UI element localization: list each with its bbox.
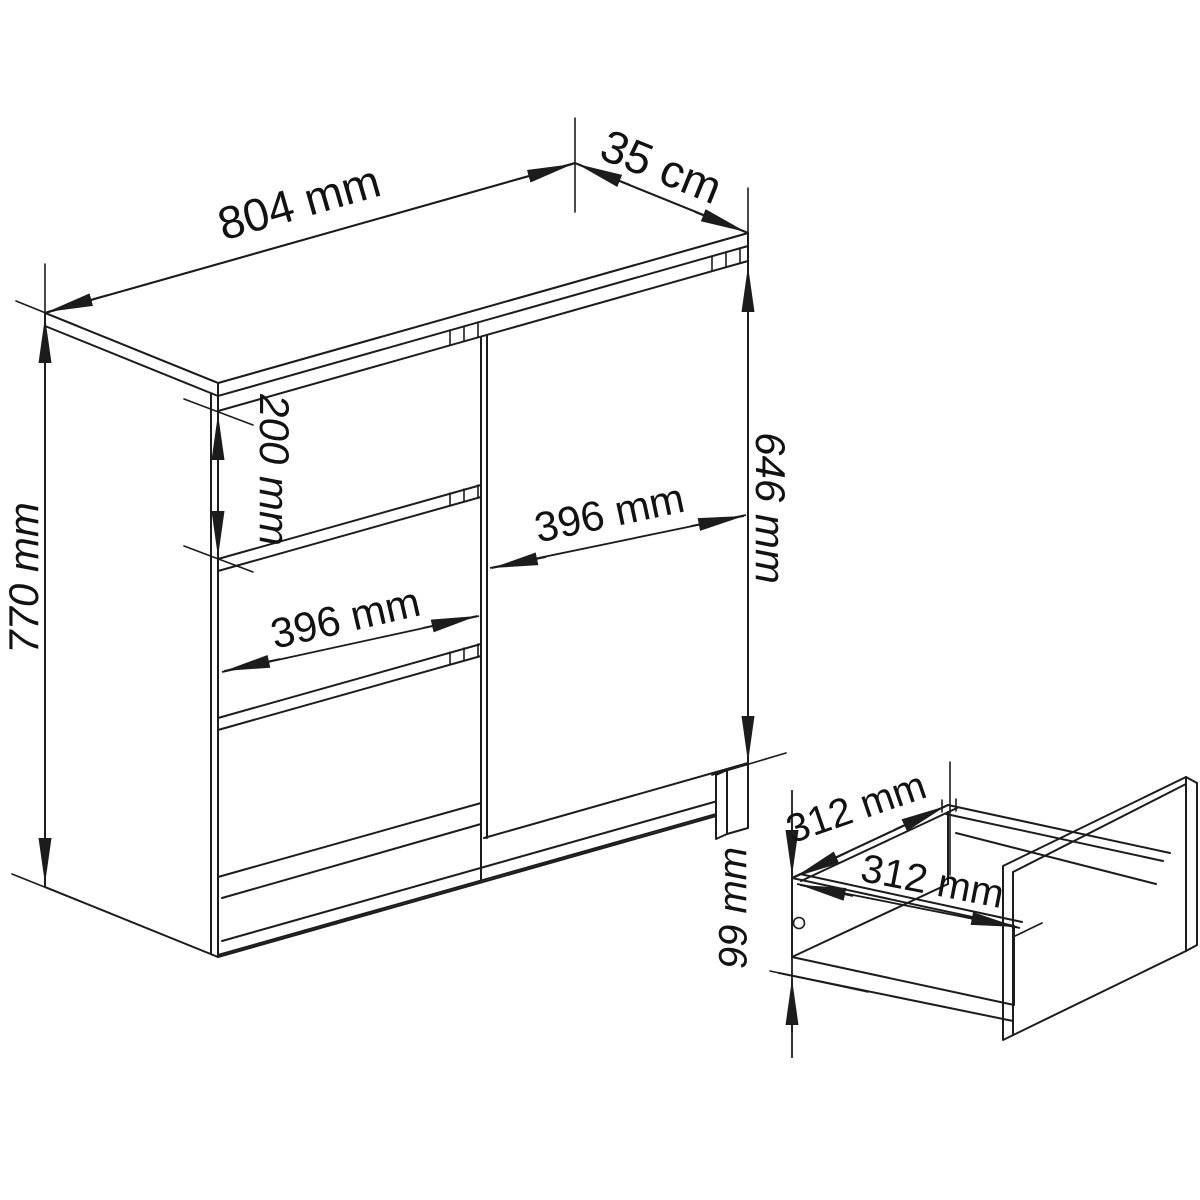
- furniture-dimension-drawing: 804 mm 35 cm 770 mm 200 mm 396 mm 396 mm…: [0, 0, 1200, 1200]
- dim-door-height-label: 646 mm: [747, 432, 794, 584]
- dim-innerwidth-arrow-left: [795, 852, 848, 877]
- drawer-front-panel: [1003, 777, 1186, 1040]
- dowel-hole: [794, 918, 805, 929]
- front-foot-left-facet: [716, 770, 727, 839]
- cabinet-left-side-face: [45, 313, 218, 957]
- dim-side-height-label: 99 mm: [712, 847, 756, 969]
- dim-inner-width-label: 312 mm: [781, 763, 932, 852]
- dim-height-label: 770 mm: [0, 502, 47, 654]
- ext-detail-bottom: [770, 971, 868, 992]
- front-foot: [727, 764, 748, 834]
- cabinet-view: [45, 163, 748, 957]
- dim-top-drawer-height-label: 200 mm: [251, 393, 298, 546]
- technical-drawing-page: 804 mm 35 cm 770 mm 200 mm 396 mm 396 mm…: [0, 0, 1200, 1200]
- dim-innerdepth-arrow-left: [800, 885, 853, 896]
- dim-inner-depth-label: 312 mm: [857, 846, 1007, 917]
- panel-right-end-facet: [1186, 777, 1197, 951]
